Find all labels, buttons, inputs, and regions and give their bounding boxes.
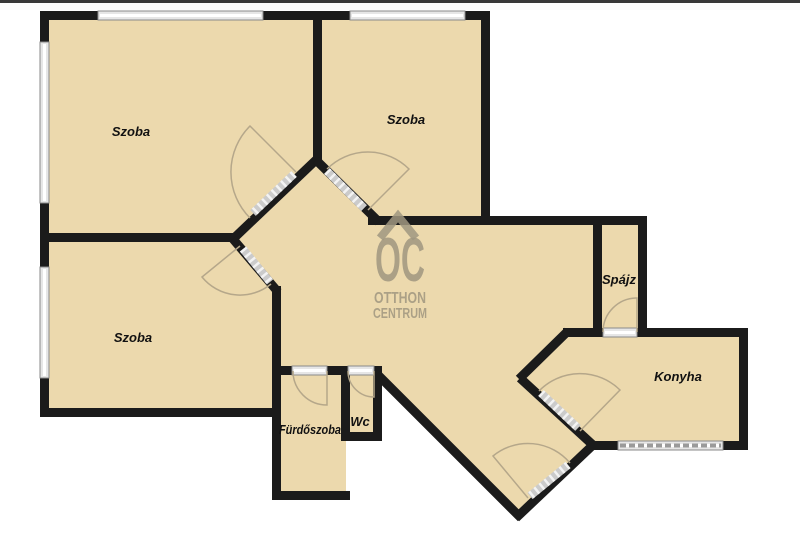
floorplan-canvas: OC OTTHON CENTRUM Szoba Szoba Szoba Spáj… xyxy=(0,0,800,534)
wall-szoba1-szoba3-divider xyxy=(40,233,237,242)
window-szoba3-left xyxy=(40,267,49,378)
wall-bath-bottom xyxy=(272,491,350,500)
watermark-centrum: CENTRUM xyxy=(373,305,427,322)
wall-konyha-top xyxy=(563,328,748,337)
wall-szoba1-szoba2-divider xyxy=(313,11,322,161)
room-floor-szoba-3 xyxy=(44,238,277,413)
wall-spajz-left xyxy=(593,216,602,337)
room-label-szoba-3: Szoba xyxy=(114,330,152,345)
watermark-oc: OC xyxy=(375,226,425,295)
door-wc xyxy=(348,366,374,375)
window-konyha-bottom xyxy=(618,441,723,450)
room-label-furdoszoba: Fürdőszoba xyxy=(279,422,341,437)
wall-szoba2-bottom xyxy=(368,216,647,225)
room-label-konyha: Konyha xyxy=(654,369,702,384)
room-label-szoba-1: Szoba xyxy=(112,124,150,139)
window-szoba2-top xyxy=(350,11,465,20)
window-szoba1-top xyxy=(98,11,263,20)
window-szoba1-left xyxy=(40,42,49,203)
wall-szoba3-right xyxy=(272,286,281,500)
door-furdoszoba xyxy=(292,366,327,375)
top-border-strip xyxy=(0,0,800,3)
wall-konyha-right xyxy=(739,328,748,450)
wall-bath-wc-divider xyxy=(341,371,350,436)
watermark-logo: OC OTTHON CENTRUM xyxy=(373,216,427,322)
room-label-spajz: Spájz xyxy=(602,272,636,287)
door-spajz xyxy=(603,328,637,337)
room-label-szoba-2: Szoba xyxy=(387,112,425,127)
floorplan-page: OC OTTHON CENTRUM Szoba Szoba Szoba Spáj… xyxy=(0,0,800,534)
wall-szoba2-right xyxy=(481,11,490,225)
wall-szoba3-bottom xyxy=(40,408,281,417)
room-label-wc: Wc xyxy=(350,414,370,429)
wall-spajz-right xyxy=(638,216,647,337)
